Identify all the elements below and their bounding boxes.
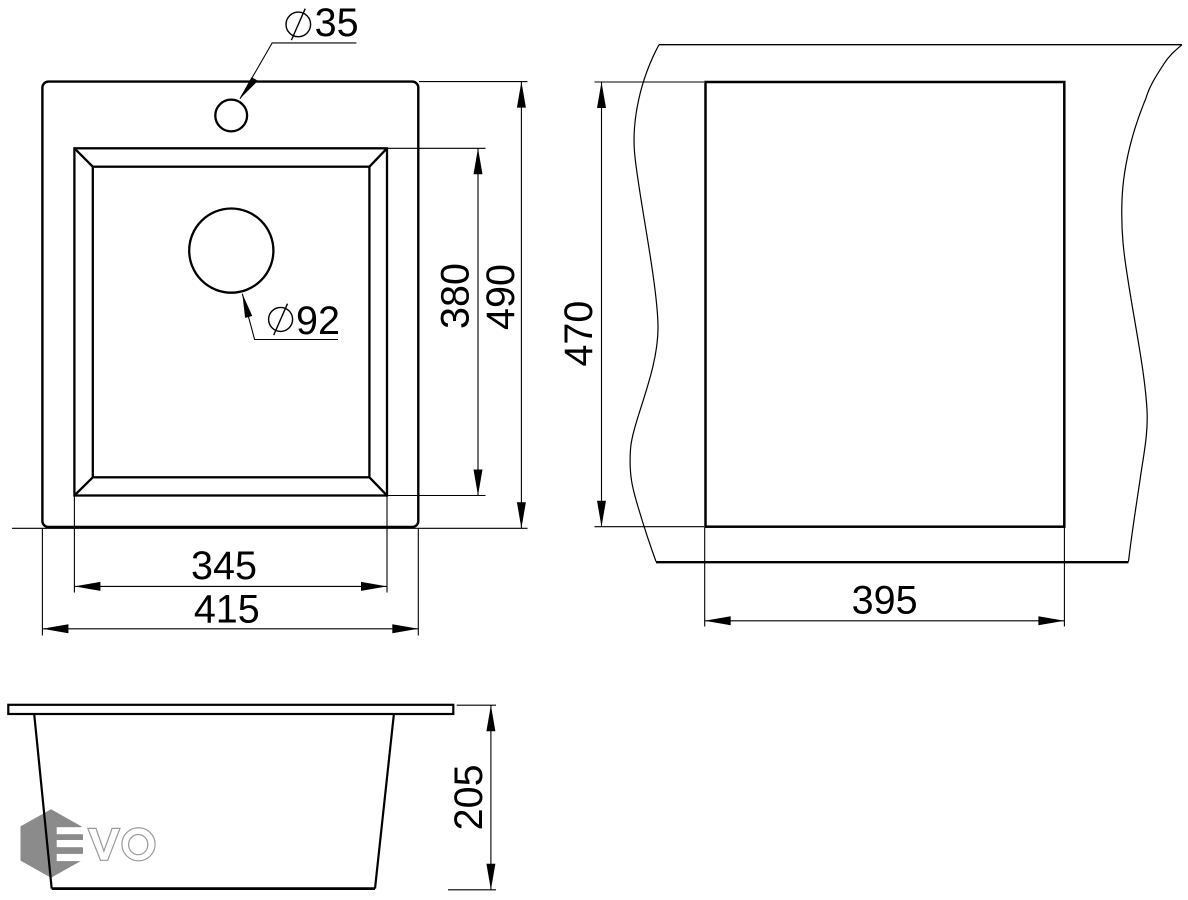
svg-text:345: 345 (191, 544, 257, 588)
svg-text:205: 205 (447, 764, 491, 830)
svg-text:470: 470 (557, 301, 601, 367)
svg-text:395: 395 (852, 579, 918, 623)
svg-text:35: 35 (315, 1, 359, 45)
svg-text:415: 415 (194, 587, 260, 631)
svg-text:380: 380 (434, 263, 478, 329)
svg-text:92: 92 (296, 299, 340, 343)
svg-text:490: 490 (479, 264, 523, 330)
